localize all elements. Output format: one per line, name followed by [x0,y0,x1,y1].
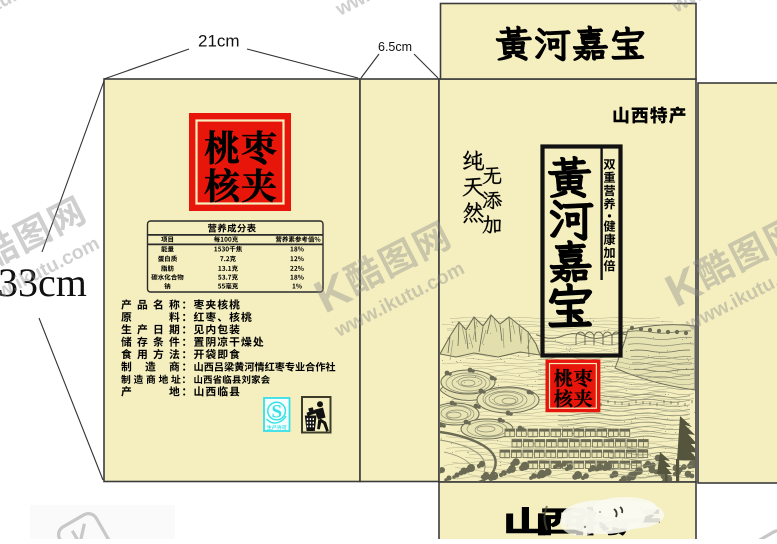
svg-text:ww.ikutu: ww.ikutu [331,0,415,21]
svg-text:S: S [272,402,283,423]
svg-text:21cm: 21cm [198,32,240,51]
svg-text:utu.com: utu.com [0,0,56,20]
svg-text:www.ik: www.ik [667,0,742,18]
svg-text:6.5cm: 6.5cm [378,40,412,54]
